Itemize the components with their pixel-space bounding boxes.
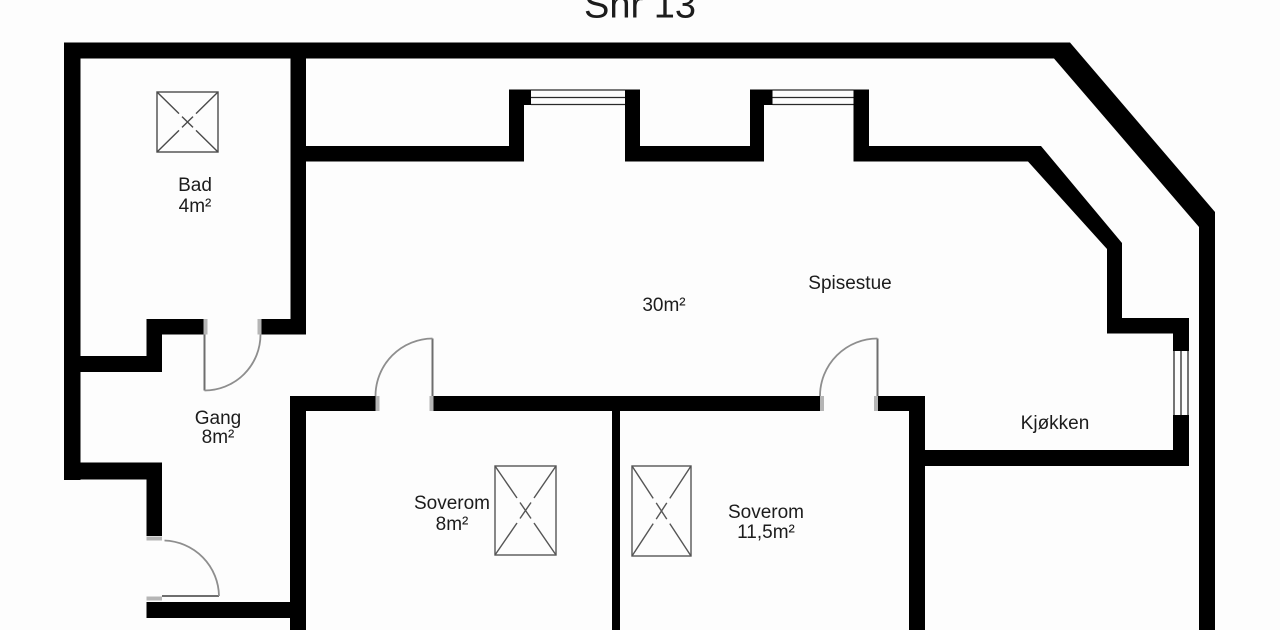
svg-text:Bad: Bad bbox=[178, 175, 212, 196]
svg-text:4m²: 4m² bbox=[179, 196, 212, 217]
svg-text:30m²: 30m² bbox=[642, 295, 685, 316]
svg-text:11,5m²: 11,5m² bbox=[737, 522, 795, 543]
svg-text:Soverom: Soverom bbox=[728, 502, 804, 523]
svg-text:8m²: 8m² bbox=[202, 427, 235, 448]
svg-text:Gang: Gang bbox=[195, 408, 241, 429]
svg-text:Kjøkken: Kjøkken bbox=[1021, 413, 1090, 434]
svg-text:Spisestue: Spisestue bbox=[808, 273, 891, 294]
svg-text:8m²: 8m² bbox=[436, 514, 469, 535]
svg-text:Snr 13: Snr 13 bbox=[584, 0, 696, 27]
svg-text:Soverom: Soverom bbox=[414, 493, 490, 514]
